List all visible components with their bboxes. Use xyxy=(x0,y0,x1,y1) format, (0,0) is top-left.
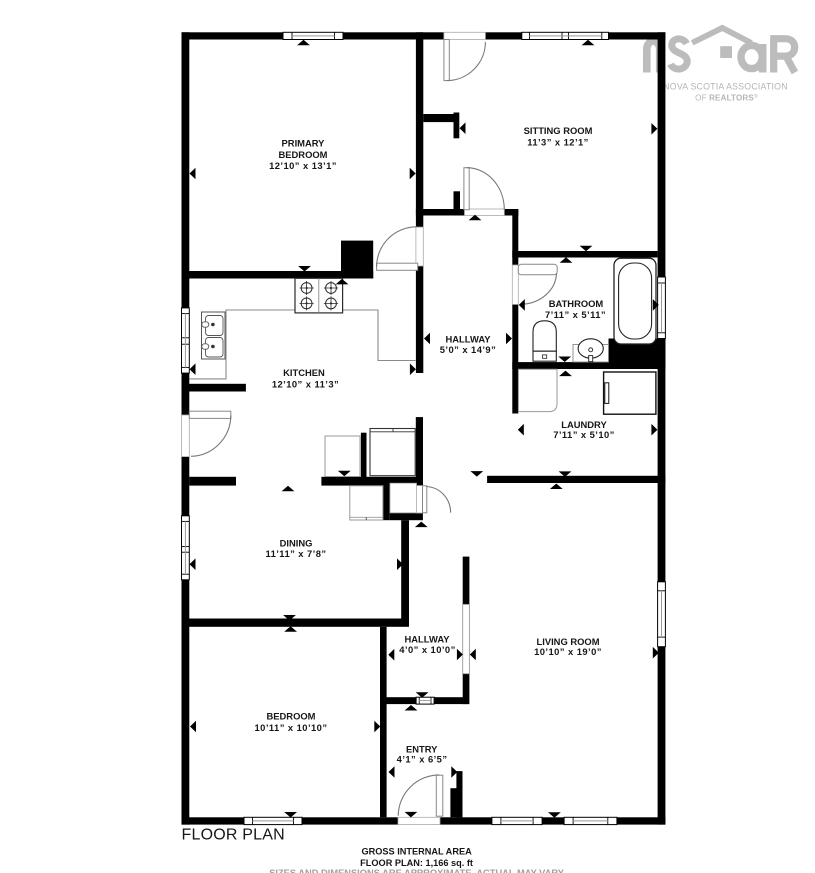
svg-text:OF REALTORS®: OF REALTORS® xyxy=(695,93,758,103)
svg-text:HALLWAY: HALLWAY xyxy=(405,633,451,644)
svg-text:PRIMARY: PRIMARY xyxy=(282,138,326,149)
svg-text:DINING: DINING xyxy=(280,537,313,548)
svg-text:11’11” x 7’8”: 11’11” x 7’8” xyxy=(265,548,326,559)
svg-text:5’0” x 14’9”: 5’0” x 14’9” xyxy=(440,344,496,355)
svg-text:KITCHEN: KITCHEN xyxy=(283,367,325,378)
svg-text:NOVA SCOTIA ASSOCIATION: NOVA SCOTIA ASSOCIATION xyxy=(663,81,788,91)
svg-text:4’1” x 6’5”: 4’1” x 6’5” xyxy=(397,754,448,765)
svg-text:10’11” x 10’10”: 10’11” x 10’10” xyxy=(255,722,328,733)
svg-text:7’11” x 5’11”: 7’11” x 5’11” xyxy=(545,309,606,320)
svg-text:12’10” x 11’3”: 12’10” x 11’3” xyxy=(272,379,339,390)
svg-text:GROSS INTERNAL AREA: GROSS INTERNAL AREA xyxy=(361,847,472,857)
svg-text:7’11” x 5’10”: 7’11” x 5’10” xyxy=(553,429,615,440)
svg-text:BATHROOM: BATHROOM xyxy=(549,298,604,309)
svg-text:HALLWAY: HALLWAY xyxy=(446,334,492,345)
svg-text:SIZES AND DIMENSIONS ARE APPRO: SIZES AND DIMENSIONS ARE APPROXIMATE, AC… xyxy=(269,868,565,873)
svg-text:SITTING ROOM: SITTING ROOM xyxy=(524,125,593,136)
svg-text:4’0” x 10’0”: 4’0” x 10’0” xyxy=(399,644,455,655)
svg-text:BEDROOM: BEDROOM xyxy=(279,149,328,160)
svg-text:FLOOR PLAN: FLOOR PLAN xyxy=(182,827,285,844)
svg-text:11’3” x 12’1”: 11’3” x 12’1” xyxy=(527,136,589,147)
svg-text:10’10” x 19’0”: 10’10” x 19’0” xyxy=(534,646,602,657)
svg-text:FLOOR PLAN: 1,166 sq. ft: FLOOR PLAN: 1,166 sq. ft xyxy=(360,858,473,868)
svg-text:BEDROOM: BEDROOM xyxy=(267,710,316,721)
svg-text:12’10” x 13’1”: 12’10” x 13’1” xyxy=(269,160,337,171)
